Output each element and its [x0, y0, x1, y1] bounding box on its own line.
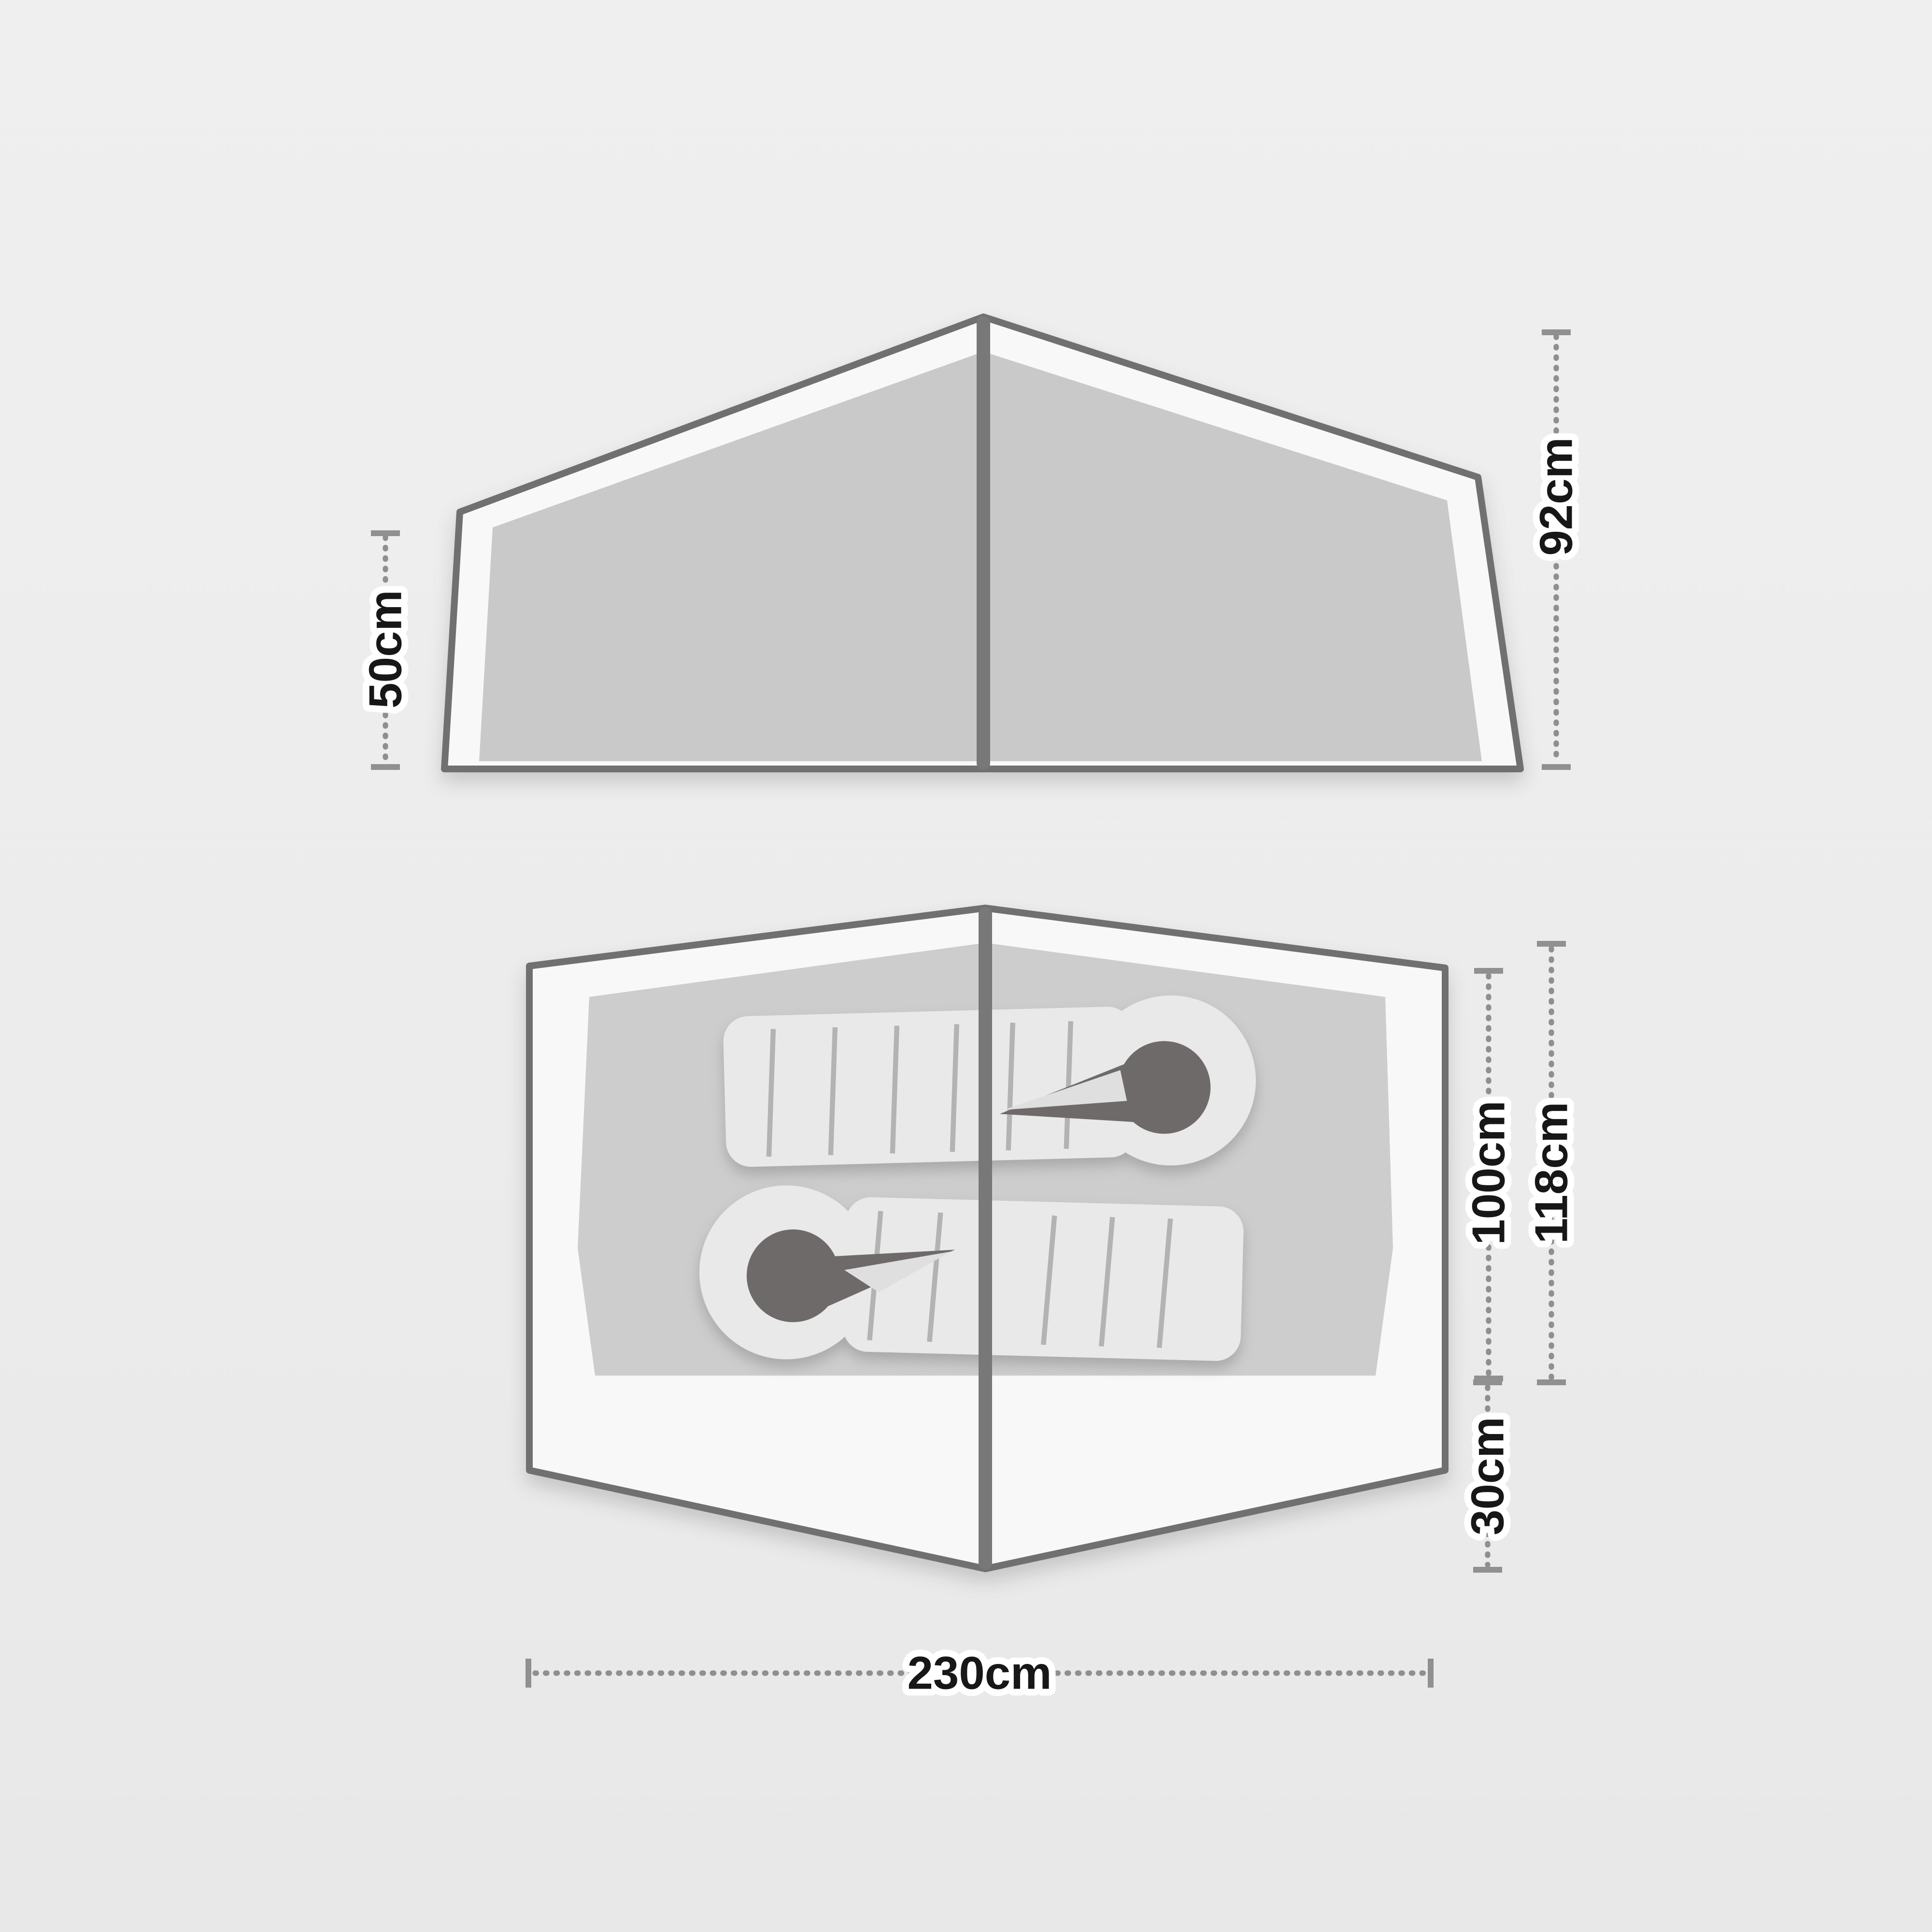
dimension-wall-height-label: 50cm: [360, 590, 412, 709]
dimension-inner-depth: 100cm: [1463, 971, 1515, 1378]
tent-dimension-diagram: 50cm 92cm 100cm 118cm 30cm: [0, 0, 1932, 1932]
floor-plan-view: [529, 908, 1445, 1569]
dimension-total-depth: 118cm: [1526, 944, 1577, 1382]
dimension-porch-depth-label: 30cm: [1462, 1417, 1514, 1535]
dimension-peak-height: 92cm: [1531, 332, 1582, 767]
dimension-total-length: 230cm: [528, 1648, 1431, 1699]
dimension-porch-depth: 30cm: [1462, 1382, 1514, 1570]
dimension-total-depth-label: 118cm: [1526, 1102, 1577, 1244]
dimension-peak-height-label: 92cm: [1531, 437, 1582, 556]
diagram-canvas: 50cm 92cm 100cm 118cm 30cm: [0, 0, 1932, 1932]
dimension-inner-depth-label: 100cm: [1463, 1101, 1515, 1245]
side-elevation-view: [444, 317, 1520, 769]
dimension-wall-height: 50cm: [360, 533, 412, 767]
sleeping-bag-bottom: [697, 1183, 1244, 1371]
dimension-total-length-label: 230cm: [908, 1648, 1052, 1699]
